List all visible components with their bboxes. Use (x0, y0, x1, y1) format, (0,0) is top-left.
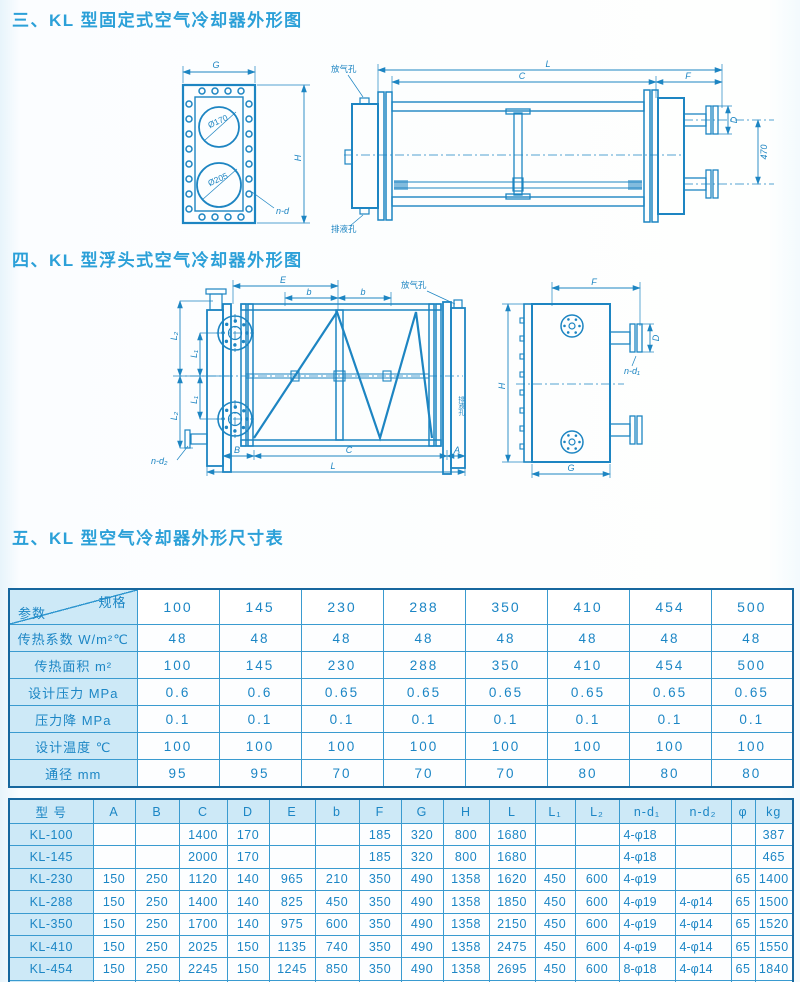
middle-support (506, 109, 530, 199)
left-side-stub (345, 150, 352, 164)
dim-label-b1: b (306, 287, 311, 297)
dim-cell: 1400 (179, 891, 227, 913)
tie-rod (394, 178, 642, 191)
dim-cell (675, 824, 731, 846)
dim-cell: 2245 (179, 958, 227, 980)
bolt-callout: n-d (252, 192, 290, 216)
dim-label-d: D (729, 116, 739, 123)
spec-cell: 48 (383, 625, 465, 652)
spec-row: 通径 mm9595707070808080 (9, 760, 793, 788)
floating-head-side-view-drawing: F H (492, 276, 667, 481)
spec-cell: 100 (547, 733, 629, 760)
spec-cell: 0.65 (383, 679, 465, 706)
dim-col-header: A (93, 799, 135, 824)
spec-cell: 100 (465, 733, 547, 760)
dim-label-g: G (212, 60, 219, 70)
bottom-left-stub (185, 430, 207, 448)
spec-row: 压力降 MPa0.10.10.10.10.10.10.10.1 (9, 706, 793, 733)
spec-row: 传热系数 W/m²℃4848484848484848 (9, 625, 793, 652)
spec-row-label: 传热面积 m² (9, 652, 137, 679)
model-cell: KL-145 (9, 846, 93, 868)
spec-corner-cell: 规格 参数 (9, 589, 137, 625)
dim-cell: 1680 (489, 846, 535, 868)
dimension-table: 型 号ABCDEbFGHLL₁L₂n-d₁n-d₂φkg KL-10014001… (8, 798, 794, 982)
dim-cell: 1840 (755, 958, 793, 980)
dim-cell: 965 (269, 868, 315, 890)
dim-cell: 170 (227, 846, 269, 868)
dim-label-f: F (591, 277, 597, 287)
dim-cell (315, 824, 359, 846)
dim-cell: 150 (227, 935, 269, 957)
dim-row: KL-145200017018532080016804-φ18465 (9, 846, 793, 868)
corner-label-param: 参数 (18, 603, 46, 622)
spec-cell: 100 (629, 733, 711, 760)
spec-cell: 100 (711, 733, 793, 760)
dim-cell: 8-φ18 (619, 958, 675, 980)
pipe-opening-bottom: Ø205 (197, 163, 241, 207)
dim-cell: 490 (401, 868, 443, 890)
dim-cell: 150 (227, 958, 269, 980)
dim-cell: 65 (731, 891, 755, 913)
dim-cell: 600 (575, 868, 619, 890)
spec-col-header: 230 (301, 589, 383, 625)
dim-cell: 1680 (489, 824, 535, 846)
dim-cell (675, 846, 731, 868)
model-cell: KL-454 (9, 958, 93, 980)
dimension-470: 470 (758, 120, 769, 184)
dim-cell: 4-φ19 (619, 935, 675, 957)
diameter-label-top: Ø170 (206, 112, 229, 130)
dim-cell: 2475 (489, 935, 535, 957)
dim-cell: 450 (535, 913, 575, 935)
dim-cell: 65 (731, 868, 755, 890)
dim-label-c: C (519, 71, 526, 81)
dim-cell: 1120 (179, 868, 227, 890)
dim-cell: 150 (93, 891, 135, 913)
dim-cell: 1358 (443, 891, 489, 913)
dim-col-header: L₂ (575, 799, 619, 824)
dim-label-470: 470 (759, 144, 769, 159)
model-cell: KL-230 (9, 868, 93, 890)
dim-cell: 450 (535, 868, 575, 890)
spec-cell: 230 (301, 652, 383, 679)
dim-cell: 150 (93, 868, 135, 890)
dim-cell (315, 846, 359, 868)
spec-cell: 0.1 (137, 706, 219, 733)
dimension-bottom: B C A L (207, 445, 465, 476)
dimension-g: G (532, 463, 610, 478)
catalog-page: 三、KL 型固定式空气冷却器外形图 G Ø170 Ø205 (0, 0, 800, 982)
bolt-circle-bottom (561, 431, 583, 453)
floating-head-front-view-drawing: E b b L₂ L₂ L₁ L₁ (133, 276, 468, 481)
vent-callout: 放气孔 (331, 64, 363, 97)
spec-col-header: 145 (219, 589, 301, 625)
spec-cell: 80 (629, 760, 711, 788)
spec-cell: 100 (137, 733, 219, 760)
dim-header-row: 型 号ABCDEbFGHLL₁L₂n-d₁n-d₂φkg (9, 799, 793, 824)
dim-cell: 140 (227, 891, 269, 913)
dim-cell: 185 (359, 824, 401, 846)
dimension-c-f: C F (392, 71, 722, 98)
spec-cell: 0.65 (465, 679, 547, 706)
dim-cell: 250 (135, 935, 179, 957)
spec-cell: 48 (465, 625, 547, 652)
dim-label-h: H (497, 382, 507, 389)
dim-cell: 250 (135, 913, 179, 935)
dim-cell: 4-φ18 (619, 846, 675, 868)
spec-cell: 0.1 (219, 706, 301, 733)
spec-row: 设计压力 MPa0.60.60.650.650.650.650.650.65 (9, 679, 793, 706)
dim-cell: 490 (401, 891, 443, 913)
dim-col-header: D (227, 799, 269, 824)
spec-cell: 0.1 (711, 706, 793, 733)
drain-label: 排液孔 (457, 395, 465, 417)
model-cell: KL-100 (9, 824, 93, 846)
dim-cell: 975 (269, 913, 315, 935)
dim-cell: 1520 (755, 913, 793, 935)
drain-callout: 排液孔 (331, 215, 363, 234)
spec-cell: 0.1 (383, 706, 465, 733)
dimension-l: L (378, 59, 722, 108)
spec-cell: 70 (301, 760, 383, 788)
dim-cell: 350 (359, 868, 401, 890)
spec-header-row: 规格 参数 100145230288350410454500 (9, 589, 793, 625)
dim-cell: 250 (135, 958, 179, 980)
spec-col-header: 500 (711, 589, 793, 625)
dim-cell: 4-φ19 (619, 891, 675, 913)
dim-row: KL-2881502501400140825450350490135818504… (9, 891, 793, 913)
dim-cell: 320 (401, 824, 443, 846)
dim-cell: 450 (535, 958, 575, 980)
flange-outline (183, 85, 255, 223)
dimension-d: D (642, 324, 661, 352)
spec-cell: 0.65 (711, 679, 793, 706)
dim-col-header: H (443, 799, 489, 824)
dim-cell: 387 (755, 824, 793, 846)
dim-label-C: C (346, 445, 353, 455)
dim-row: KL-100140017018532080016804-φ18387 (9, 824, 793, 846)
dim-cell: 1500 (755, 891, 793, 913)
dim-label-d: D (651, 334, 661, 341)
dim-cell: 150 (93, 958, 135, 980)
left-tubesheet-flanges (378, 92, 392, 220)
spec-row-label: 设计压力 MPa (9, 679, 137, 706)
dim-cell: 1550 (755, 935, 793, 957)
dim-label-A: A (453, 445, 460, 455)
spec-table-wrap: 规格 参数 100145230288350410454500 传热系数 W/m²… (8, 588, 792, 788)
dim-cell: 490 (401, 958, 443, 980)
dim-cell: 2000 (179, 846, 227, 868)
fixed-type-side-view-drawing: L C F 放气孔 排液孔 (330, 58, 800, 238)
spec-row: 设计温度 ℃100100100100100100100100 (9, 733, 793, 760)
spec-cell: 70 (383, 760, 465, 788)
model-col-header: 型 号 (9, 799, 93, 824)
dim-cell: 1400 (179, 824, 227, 846)
dim-cell: 1135 (269, 935, 315, 957)
spec-cell: 100 (219, 733, 301, 760)
spec-cell: 0.1 (465, 706, 547, 733)
spec-col-header: 100 (137, 589, 219, 625)
flange-inner-outline (195, 97, 243, 211)
dimension-h: H (257, 85, 310, 223)
spec-cell: 95 (137, 760, 219, 788)
fixed-type-front-view-drawing: G Ø170 Ø205 H n-d (158, 52, 333, 237)
spec-cell: 80 (547, 760, 629, 788)
spec-col-header: 350 (465, 589, 547, 625)
spec-table: 规格 参数 100145230288350410454500 传热系数 W/m²… (8, 588, 794, 788)
dim-cell: 65 (731, 913, 755, 935)
spec-cell: 48 (547, 625, 629, 652)
dim-col-header: n-d₁ (619, 799, 675, 824)
dim-label-L: L (330, 461, 335, 471)
dim-label-l1-bottom: L₁ (189, 396, 199, 404)
dim-row: KL-3501502501700140975600350490135821504… (9, 913, 793, 935)
dim-cell: 490 (401, 935, 443, 957)
dim-cell: 1358 (443, 935, 489, 957)
dim-cell: 140 (227, 913, 269, 935)
dim-cell: 150 (93, 935, 135, 957)
dim-cell (575, 846, 619, 868)
vent-stub (454, 300, 462, 308)
nd1-callout: n-d₁ (624, 356, 640, 376)
spec-row: 传热面积 m²100145230288350410454500 (9, 652, 793, 679)
dim-cell: 1620 (489, 868, 535, 890)
dim-label-l2-bottom: L₂ (169, 411, 179, 420)
spec-cell: 48 (301, 625, 383, 652)
spec-cell: 48 (711, 625, 793, 652)
section3-title: 三、KL 型固定式空气冷却器外形图 (12, 6, 303, 31)
dim-cell: 4-φ19 (619, 868, 675, 890)
dim-cell: 350 (359, 913, 401, 935)
dim-col-header: E (269, 799, 315, 824)
spec-cell: 0.1 (629, 706, 711, 733)
spec-row-label: 传热系数 W/m²℃ (9, 625, 137, 652)
dim-label-e: E (280, 275, 287, 285)
corner-label-spec: 规格 (98, 592, 126, 611)
dim-cell: 210 (315, 868, 359, 890)
spec-cell: 0.1 (547, 706, 629, 733)
right-tubesheet (443, 302, 451, 474)
tubesheet-plate (524, 304, 532, 462)
dim-cell: 450 (535, 935, 575, 957)
dim-cell: 4-φ19 (619, 913, 675, 935)
spec-cell: 500 (711, 652, 793, 679)
nd-label: n-d (276, 206, 290, 216)
dim-cell: 1850 (489, 891, 535, 913)
dim-cell: 4-φ14 (675, 891, 731, 913)
dim-cell (575, 824, 619, 846)
spec-cell: 145 (219, 652, 301, 679)
spec-row-label: 通径 mm (9, 760, 137, 788)
spec-cell: 100 (301, 733, 383, 760)
spec-cell: 0.6 (137, 679, 219, 706)
dim-cell (535, 846, 575, 868)
dim-cell: 490 (401, 913, 443, 935)
dim-cell: 4-φ18 (619, 824, 675, 846)
spec-row-label: 设计温度 ℃ (9, 733, 137, 760)
dim-cell: 600 (575, 891, 619, 913)
vent-callout: 放气孔 (401, 280, 455, 304)
spec-cell: 48 (137, 625, 219, 652)
dim-cell: 1400 (755, 868, 793, 890)
dim-cell: 1358 (443, 913, 489, 935)
dim-label-h: H (293, 154, 303, 161)
spec-col-header: 288 (383, 589, 465, 625)
nd1-label: n-d₁ (624, 366, 640, 376)
dim-col-header: b (315, 799, 359, 824)
left-bonnet (352, 104, 378, 208)
dim-cell: 450 (535, 891, 575, 913)
bottom-nozzle (610, 416, 642, 444)
dim-label-l2-top: L₂ (169, 331, 179, 340)
dim-col-header: B (135, 799, 179, 824)
spec-cell: 0.65 (301, 679, 383, 706)
dim-cell: 2025 (179, 935, 227, 957)
dim-row: KL-2301502501120140965210350490135816204… (9, 868, 793, 890)
bolt-circle-top (561, 315, 583, 337)
dim-cell (535, 824, 575, 846)
dim-cell (135, 824, 179, 846)
dim-cell: 250 (135, 891, 179, 913)
dim-cell: 1700 (179, 913, 227, 935)
dim-cell: 170 (227, 824, 269, 846)
dim-cell: 1358 (443, 868, 489, 890)
dim-cell: 450 (315, 891, 359, 913)
dim-col-header: φ (731, 799, 755, 824)
model-cell: KL-350 (9, 913, 93, 935)
section4-title: 四、KL 型浮头式空气冷却器外形图 (12, 246, 303, 271)
right-head (451, 308, 465, 468)
dim-cell: 140 (227, 868, 269, 890)
dim-row: KL-4541502502245150124585035049013582695… (9, 958, 793, 980)
dim-cell: 600 (315, 913, 359, 935)
top-rail (392, 102, 644, 111)
vent-label: 放气孔 (331, 64, 357, 74)
dim-cell: 850 (315, 958, 359, 980)
spec-cell: 80 (711, 760, 793, 788)
spec-cell: 70 (465, 760, 547, 788)
dim-col-header: L₁ (535, 799, 575, 824)
dim-cell: 800 (443, 824, 489, 846)
section5-title: 五、KL 型空气冷却器外形尺寸表 (12, 524, 284, 549)
head-body (532, 304, 610, 462)
spec-col-header: 410 (547, 589, 629, 625)
dim-label-B: B (234, 445, 240, 455)
spec-row-label: 压力降 MPa (9, 706, 137, 733)
dim-cell: 350 (359, 935, 401, 957)
dim-col-header: n-d₂ (675, 799, 731, 824)
dim-cell: 4-φ14 (675, 935, 731, 957)
dim-cell: 2150 (489, 913, 535, 935)
dim-cell: 4-φ14 (675, 913, 731, 935)
spec-cell: 454 (629, 652, 711, 679)
dim-cell: 825 (269, 891, 315, 913)
spec-cell: 100 (383, 733, 465, 760)
dim-cell: 65 (731, 935, 755, 957)
dimension-f: F (552, 277, 640, 326)
dim-col-header: F (359, 799, 401, 824)
dim-cell: 600 (575, 958, 619, 980)
dim-cell (93, 846, 135, 868)
dim-cell (675, 868, 731, 890)
dim-cell: 320 (401, 846, 443, 868)
spec-cell: 0.65 (547, 679, 629, 706)
dim-cell: 65 (731, 958, 755, 980)
dim-cell: 600 (575, 935, 619, 957)
dim-label-l1-top: L₁ (189, 350, 199, 358)
drain-label: 排液孔 (331, 224, 357, 234)
dim-col-header: C (179, 799, 227, 824)
spec-cell: 0.1 (301, 706, 383, 733)
nd2-callout: n-d₂ (151, 446, 188, 466)
dim-cell: 740 (315, 935, 359, 957)
model-cell: KL-288 (9, 891, 93, 913)
nd2-label: n-d₂ (151, 456, 168, 466)
dim-row: KL-4101502502025150113574035049013582475… (9, 935, 793, 957)
dim-cell: 2695 (489, 958, 535, 980)
dim-cell (269, 846, 315, 868)
dim-cell: 600 (575, 913, 619, 935)
dim-col-header: L (489, 799, 535, 824)
dim-col-header: kg (755, 799, 793, 824)
spec-cell: 48 (219, 625, 301, 652)
dimension-g: G (183, 60, 255, 83)
dim-cell: 250 (135, 868, 179, 890)
dim-cell (269, 824, 315, 846)
dim-table-wrap: 型 号ABCDEbFGHLL₁L₂n-d₁n-d₂φkg KL-10014001… (8, 798, 792, 982)
dim-cell: 150 (93, 913, 135, 935)
dim-cell: 1358 (443, 958, 489, 980)
pipe-opening-top: Ø170 (199, 107, 239, 147)
dim-cell (731, 846, 755, 868)
dim-cell (731, 824, 755, 846)
spec-cell: 288 (383, 652, 465, 679)
dim-label-g: G (567, 463, 574, 473)
dim-cell: 465 (755, 846, 793, 868)
spec-cell: 0.6 (219, 679, 301, 706)
diameter-label-bottom: Ø205 (206, 170, 229, 188)
spec-cell: 95 (219, 760, 301, 788)
spec-cell: 410 (547, 652, 629, 679)
dim-cell: 1245 (269, 958, 315, 980)
dim-col-header: G (401, 799, 443, 824)
dim-cell: 4-φ14 (675, 958, 731, 980)
spec-cell: 100 (137, 652, 219, 679)
dim-label-l: L (545, 59, 550, 69)
dim-cell (93, 824, 135, 846)
spec-cell: 48 (629, 625, 711, 652)
dim-cell: 185 (359, 846, 401, 868)
right-tubesheet-flanges (644, 90, 658, 222)
right-bonnet (658, 98, 684, 214)
dim-cell (135, 846, 179, 868)
dim-label-f: F (685, 71, 691, 81)
spec-cell: 350 (465, 652, 547, 679)
dim-cell: 350 (359, 891, 401, 913)
spec-col-header: 454 (629, 589, 711, 625)
spec-cell: 0.65 (629, 679, 711, 706)
dim-cell: 350 (359, 958, 401, 980)
dim-label-b2: b (360, 287, 365, 297)
dim-cell: 800 (443, 846, 489, 868)
vent-label: 放气孔 (401, 280, 427, 290)
top-nozzle (610, 324, 642, 352)
model-cell: KL-410 (9, 935, 93, 957)
